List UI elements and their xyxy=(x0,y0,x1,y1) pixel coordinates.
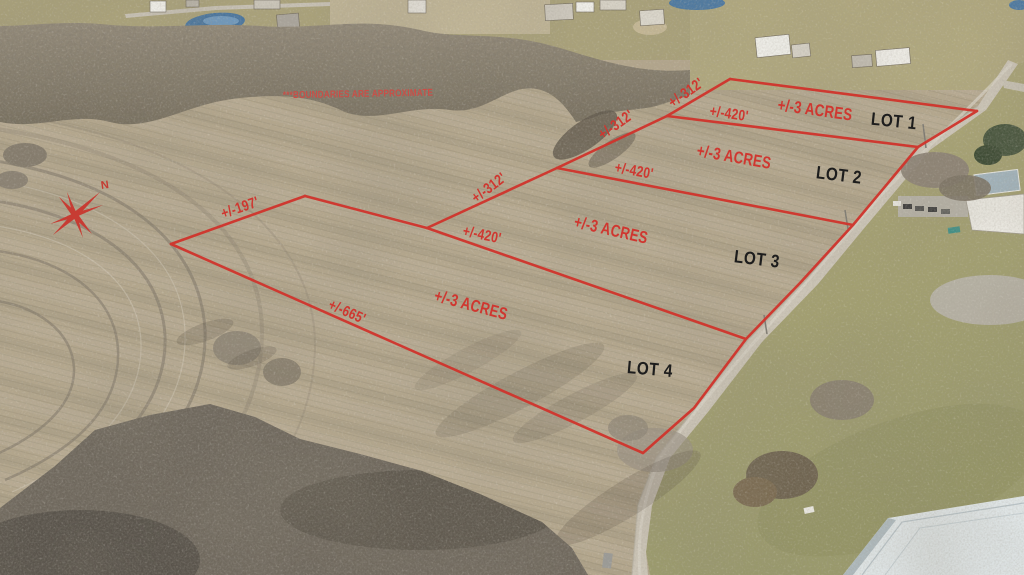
aerial-lot-photo: ***BOUNDARIES ARE APPROXIMATE N +/-312' … xyxy=(0,0,1024,575)
photo-grain-light xyxy=(0,0,1024,575)
terrain-art xyxy=(0,0,1024,575)
